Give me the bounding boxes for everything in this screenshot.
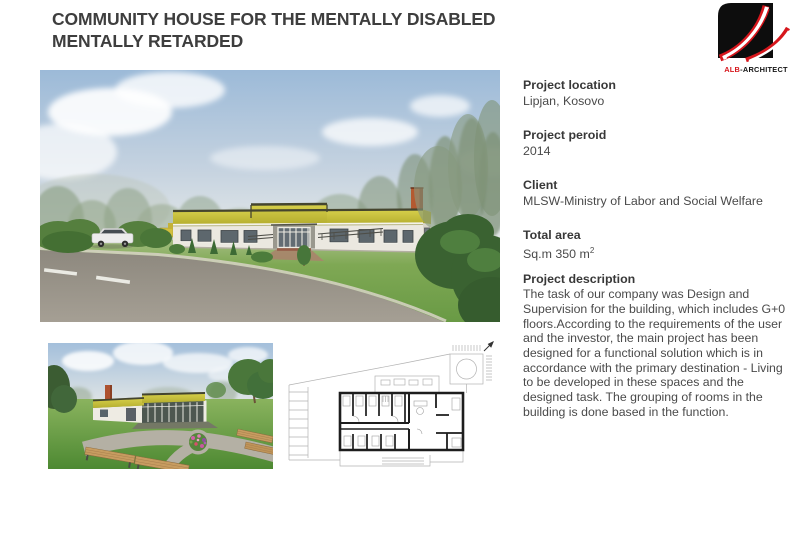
project-description-text: The task of our company was Design and S… xyxy=(523,287,795,419)
company-logo: ALB-ARCHITECT xyxy=(716,2,800,64)
section-total-area: Total area Sq.m 350 m2 xyxy=(523,227,795,262)
garden-render-image xyxy=(48,343,273,469)
project-location-value: Lipjan, Kosovo xyxy=(523,93,795,109)
section-client: Client MLSW-Ministry of Labor and Social… xyxy=(523,177,795,209)
total-area-value: Sq.m 350 m2 xyxy=(523,243,795,262)
page-title-line2: MENTALLY RETARDED xyxy=(52,31,495,53)
page-title: COMMUNITY HOUSE FOR THE MENTALLY DISABLE… xyxy=(52,9,495,52)
project-period-label: Project peroid xyxy=(523,127,795,143)
presentation-slide: COMMUNITY HOUSE FOR THE MENTALLY DISABLE… xyxy=(0,0,800,544)
project-location-label: Project location xyxy=(523,77,795,93)
total-area-label: Total area xyxy=(523,227,795,243)
project-details-panel: Project location Lipjan, Kosovo Project … xyxy=(523,77,795,419)
project-period-value: 2014 xyxy=(523,143,795,159)
total-area-text: Sq.m 350 m xyxy=(523,247,590,261)
logo-wordmark: ALB-ARCHITECT xyxy=(714,65,798,74)
logo-wordmark-red: ALB xyxy=(724,65,740,74)
client-label: Client xyxy=(523,177,795,193)
main-render-image xyxy=(40,70,500,322)
total-area-superscript: 2 xyxy=(590,246,594,255)
alb-architect-logo-icon xyxy=(716,2,800,64)
floor-plan-image xyxy=(287,338,499,478)
section-project-period: Project peroid 2014 xyxy=(523,127,795,159)
client-value: MLSW-Ministry of Labor and Social Welfar… xyxy=(523,193,795,209)
section-project-location: Project location Lipjan, Kosovo xyxy=(523,77,795,109)
section-project-description: Project description The task of our comp… xyxy=(523,272,795,419)
project-description-label: Project description xyxy=(523,272,795,287)
page-title-line1: COMMUNITY HOUSE FOR THE MENTALLY DISABLE… xyxy=(52,9,495,31)
logo-wordmark-black: -ARCHITECT xyxy=(740,65,788,74)
